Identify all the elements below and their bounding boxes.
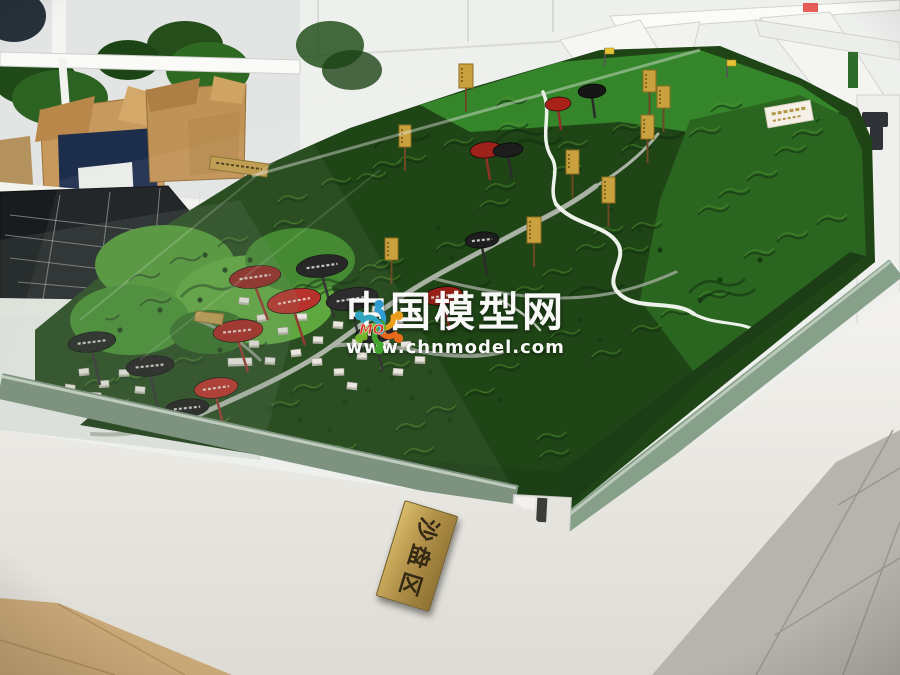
showroom-photo: MO 中国模型网 www.chnmodel.com 沙 盘 区	[0, 0, 900, 675]
plaque-char-3: 区	[393, 568, 424, 597]
watermark: MO 中国模型网 www.chnmodel.com	[346, 292, 566, 358]
logo-mo-text: MO	[359, 323, 384, 338]
plaque-char-2: 盘	[402, 541, 433, 570]
plaque-char-1: 沙	[410, 514, 441, 543]
watermark-logo-icon: MO	[346, 292, 412, 362]
